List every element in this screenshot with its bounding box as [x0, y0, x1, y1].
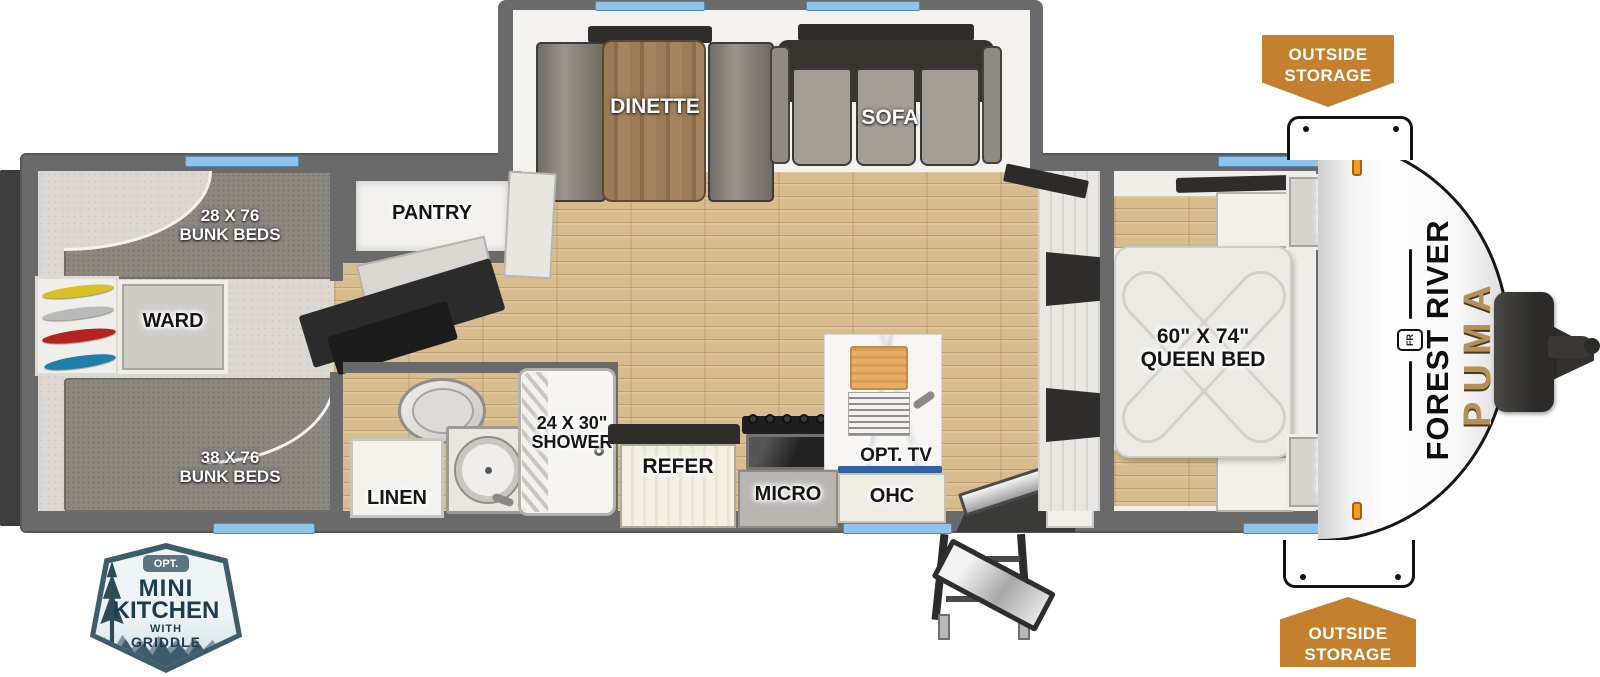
open-shelf-upper [1046, 252, 1102, 306]
tall-cabinet [503, 171, 556, 279]
window-kitchen-bottom [843, 523, 952, 534]
mini-kitchen-badge-inner: OPT. MINI KITCHEN WITH GRIDDLE [91, 549, 241, 667]
entry-door-open [931, 538, 1056, 632]
microwave [746, 434, 830, 470]
cooktop-knob-3 [782, 414, 792, 424]
counter-over-refer [608, 424, 740, 444]
dinette-bench-right [708, 42, 774, 202]
outside-storage-badge-top: OUTSIDE STORAGE [1262, 35, 1394, 107]
outside-storage-badge-top-text: OUTSIDE STORAGE [1262, 35, 1394, 87]
badge-griddle: GRIDDLE [91, 634, 241, 650]
entertainment-wall [1038, 171, 1102, 511]
logo-dash-left [1409, 361, 1412, 431]
bedroom-divider-wall [1100, 171, 1114, 511]
storage-compartment-front-top [1287, 116, 1413, 160]
storage-latch-top-2 [1393, 126, 1399, 132]
cooktop-knob-2 [765, 414, 775, 424]
linen-label: LINEN [350, 488, 444, 510]
cutting-board [850, 346, 908, 390]
outside-storage-badge-bottom-text: OUTSIDE STORAGE [1280, 597, 1416, 666]
slideout-window-right [806, 1, 920, 11]
bunk-wall-upper [330, 171, 343, 281]
sofa-armrest-left [770, 46, 790, 164]
storage-latch-bottom-2 [1395, 574, 1401, 580]
bedroom-wood-bottom [1114, 450, 1222, 506]
outside-storage-badge-bottom: OUTSIDE STORAGE [1280, 597, 1416, 667]
micro-label: MICRO [738, 484, 838, 506]
top-bunk-label: 28 X 76 BUNK BEDS [140, 206, 320, 244]
dinette-label: DINETTE [600, 95, 710, 119]
dinette-table [602, 40, 706, 202]
step-foot-left [938, 614, 950, 640]
storage-latch-bottom-1 [1300, 574, 1306, 580]
queen-bed-label: 60" X 74" QUEEN BED [1114, 326, 1292, 371]
wardrobe-label: WARD [118, 311, 228, 333]
bottom-bunk-label: 38 X 76 BUNK BEDS [140, 448, 320, 486]
nightstand-bottom [1216, 456, 1294, 512]
opt-tv-label: OPT. TV [848, 446, 944, 467]
rear-bumper [0, 170, 22, 526]
badge-opt-pill: OPT. [143, 555, 189, 572]
cooktop-knob-4 [799, 414, 809, 424]
island-sink-grate [848, 392, 910, 436]
sink-drain [485, 467, 492, 474]
open-shelf-lower [1046, 388, 1102, 442]
sofa-armrest-right [982, 46, 1002, 164]
refer-label: REFER [620, 456, 736, 479]
mini-kitchen-badge: OPT. MINI KITCHEN WITH GRIDDLE [85, 543, 247, 673]
pantry-label: PANTRY [356, 203, 508, 225]
hitch-coupler-tip [1584, 338, 1600, 354]
bunk-wall-lower [330, 372, 343, 511]
marker-light-top [1352, 158, 1362, 176]
window-bunk-bottom [213, 523, 315, 534]
ohc-label: OHC [838, 486, 946, 508]
model-name: PUMA [1457, 191, 1499, 511]
floorplan-canvas: DINETTE SOFA 28 X 76 BUNK BEDS WARD 38 X… [0, 0, 1600, 677]
brand-name: FOREST RIVER [1418, 170, 1458, 510]
window-bunk-top [185, 156, 299, 167]
logo-dash-right [1409, 249, 1412, 319]
bedroom-wood-top [1114, 196, 1222, 248]
marker-light-bottom [1352, 502, 1362, 520]
propane-cover [1494, 292, 1554, 412]
nightstand-top [1216, 192, 1294, 248]
slideout-window-left [595, 1, 705, 11]
cooktop-knob-1 [748, 414, 758, 424]
storage-latch-top-1 [1303, 126, 1309, 132]
sofa-label: SOFA [840, 106, 940, 130]
sofa-overhead-shelf [798, 24, 974, 41]
counter-edge-blue [838, 466, 942, 473]
storage-compartment-front-bottom [1283, 540, 1415, 588]
badge-kitchen: KITCHEN [91, 597, 241, 625]
